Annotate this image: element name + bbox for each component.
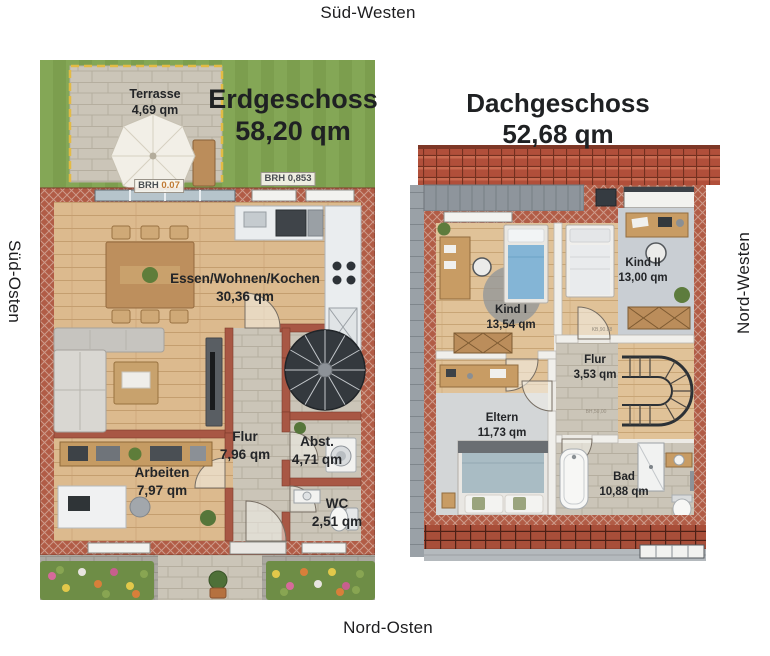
orientation-label-bottom: Nord-Osten [343,618,433,638]
front-garden [40,555,375,600]
room-label-eltern: Eltern 11,73 qm [478,411,527,441]
dachgeschoss-plan [410,145,720,575]
orientation-label-right: Nord-Westen [734,232,754,334]
floor-plan-figure: Süd-Westen Süd-Osten Nord-Westen Nord-Os… [0,0,770,656]
dachgeschoss-title-text: Dachgeschoss [466,88,650,119]
room-label-arbeiten: Arbeiten 7,97 qm [135,464,190,499]
erdgeschoss-area-text: 58,20 qm [208,116,378,148]
room-label-kind2: Kind II 13,00 qm [618,256,667,286]
coffee-table [114,362,158,404]
orientation-label-top: Süd-Westen [320,3,415,23]
dachgeschoss-title: Dachgeschoss 52,68 qm [466,88,650,149]
roof-eave-left [410,185,424,557]
room-label-flur-eg: Flur 7,96 qm [220,428,270,463]
room-label-flur-dg: Flur 3,53 qm [574,353,617,383]
dachgeschoss-area-text: 52,68 qm [466,119,650,150]
roof-lower [424,515,706,561]
tv-console [206,338,222,426]
room-label-bad: Bad 10,88 qm [599,470,648,500]
roof-upper [418,145,720,185]
orientation-label-left: Süd-Osten [4,240,24,323]
room-label-terrasse: Terrasse 4,69 qm [129,86,180,119]
erdgeschoss-title-text: Erdgeschoss [208,84,378,116]
brh-annotation-2: BRH 0,853 [260,172,315,186]
room-label-wc: WC 2,51 qm [312,495,362,530]
room-label-abst: Abst. 4,71 qm [292,433,342,468]
door-annotation-2: BH,50,00 [586,409,607,415]
brh-annotation-1: BRH 0.07 [134,179,184,193]
room-label-wohnen: Essen/Wohnen/Kochen 30,36 qm [170,270,320,305]
room-label-kind1: Kind I 13,54 qm [486,303,535,333]
potted-plant [209,571,227,589]
spiral-staircase-eg [285,330,365,410]
dormer-band [424,185,706,211]
erdgeschoss-title: Erdgeschoss 58,20 qm [208,84,378,148]
door-annotation-1: KB,90.88 [592,327,613,333]
